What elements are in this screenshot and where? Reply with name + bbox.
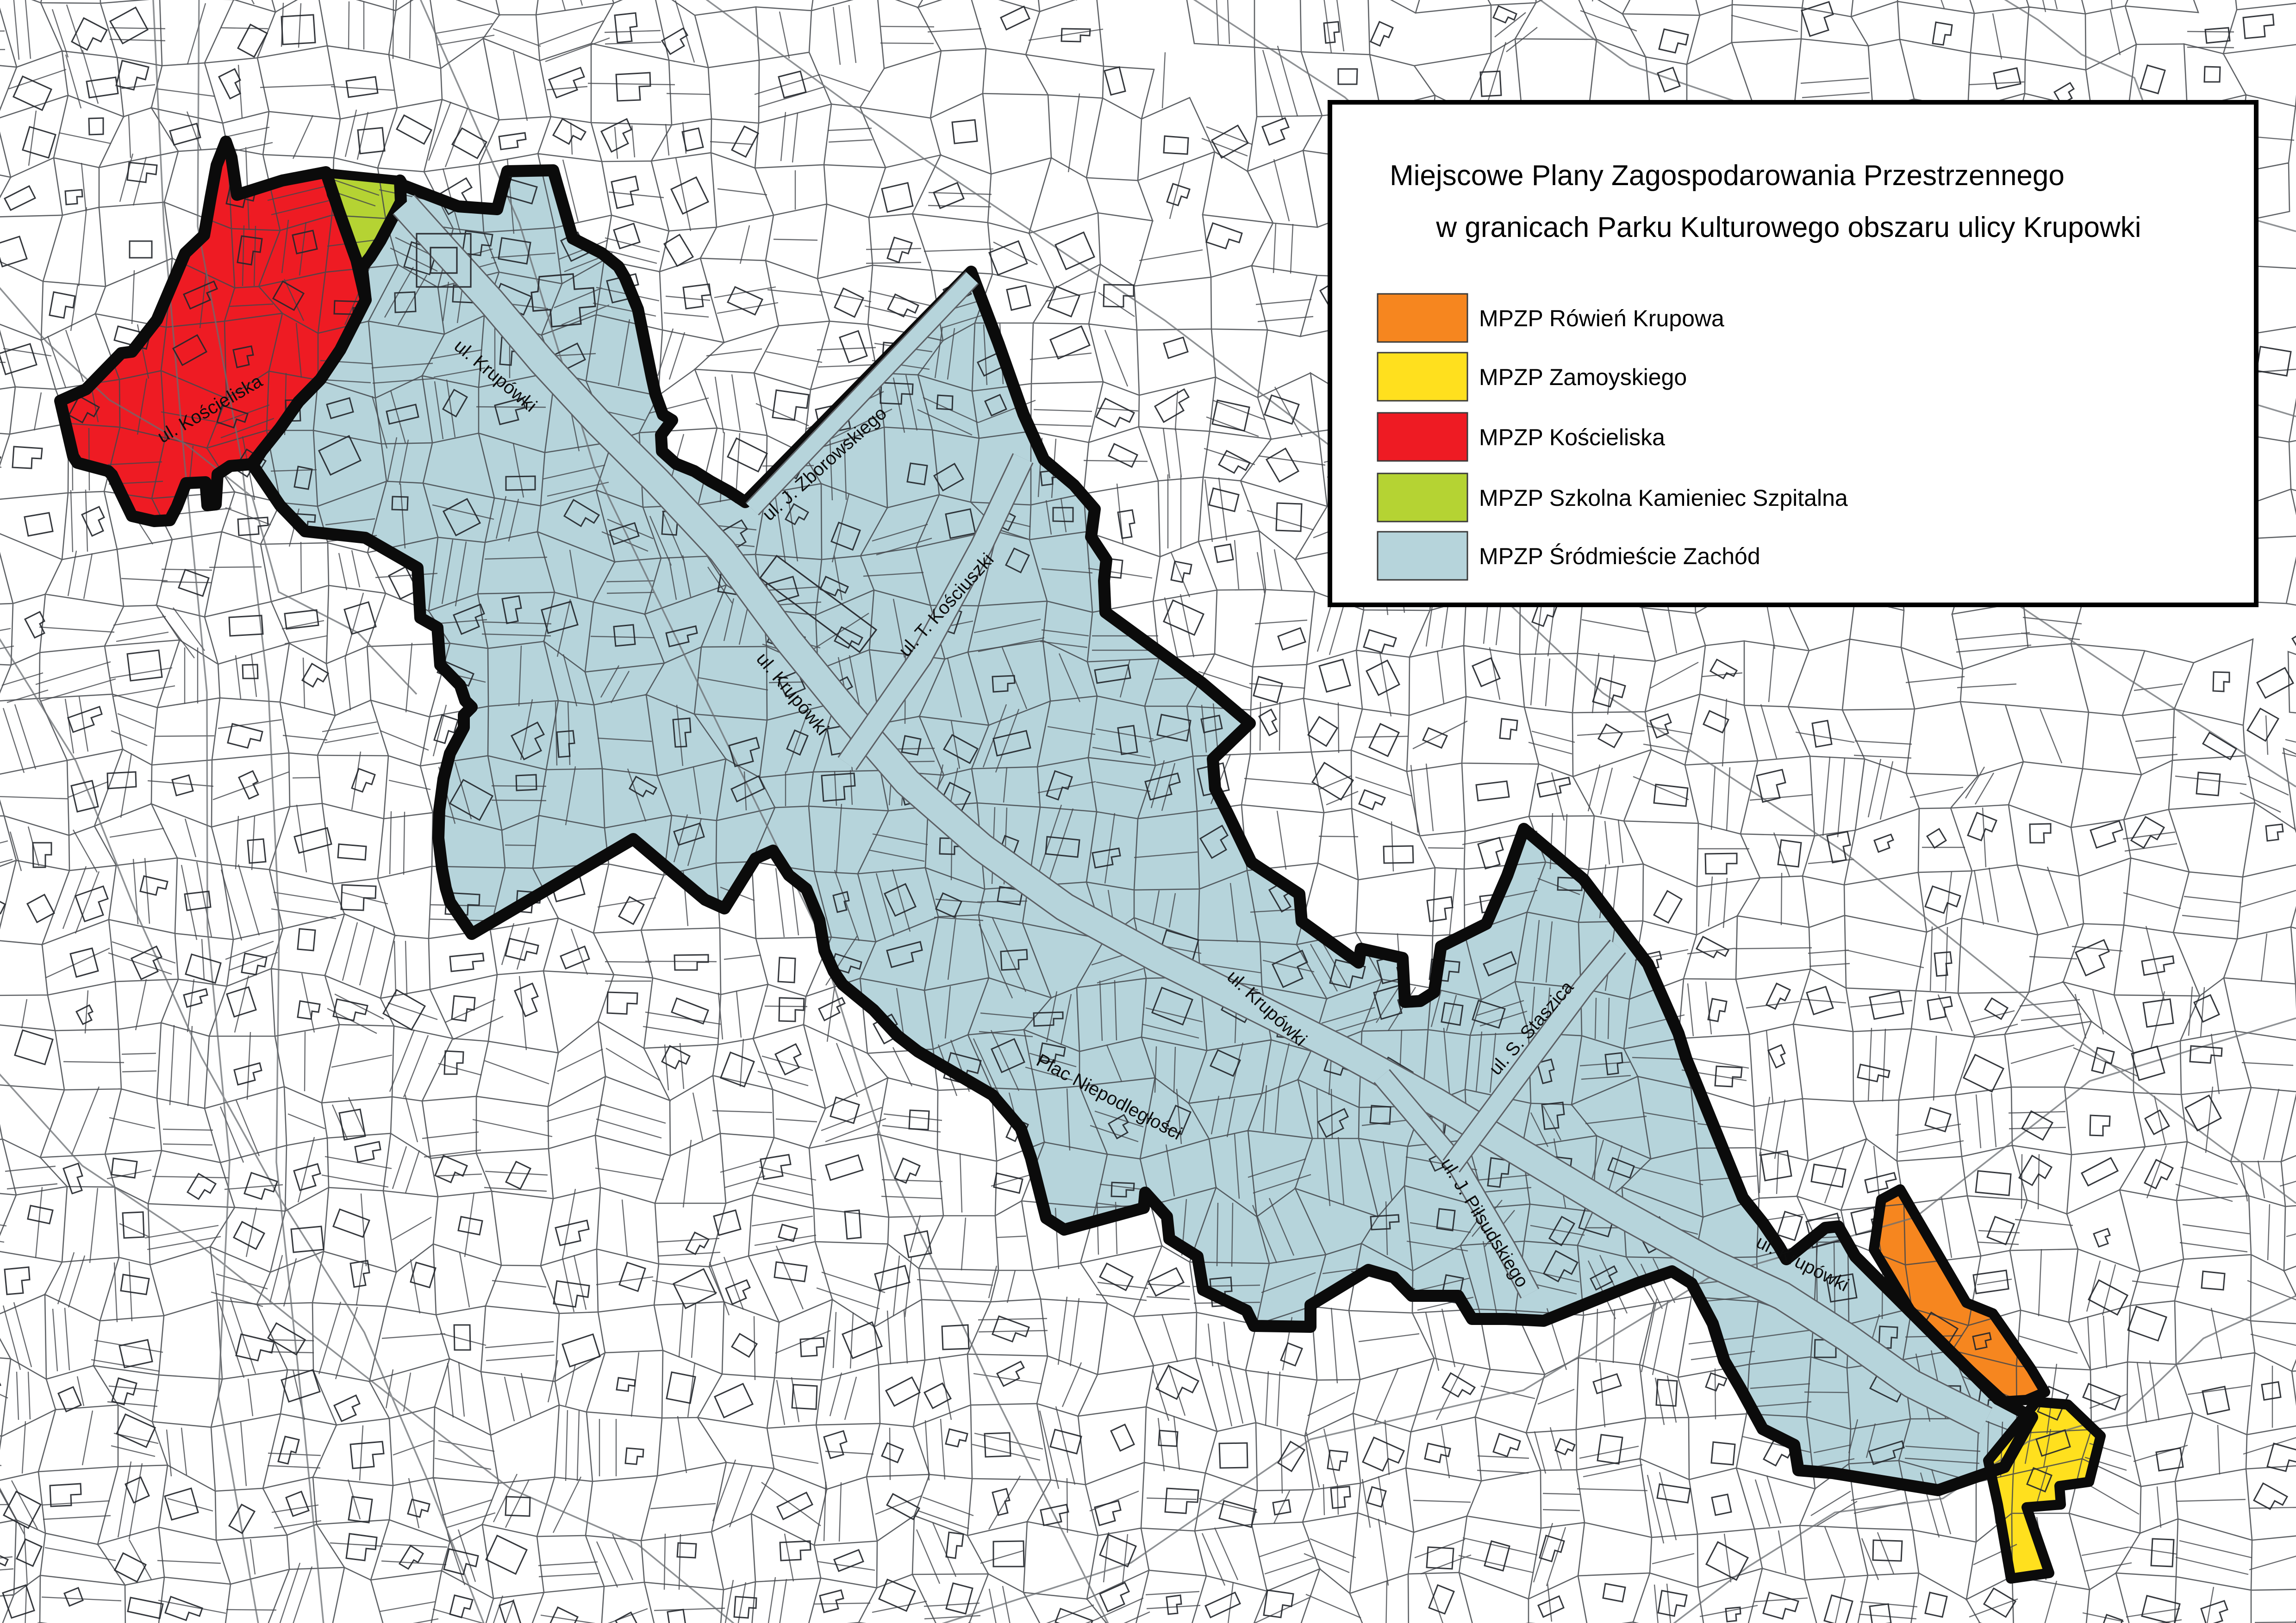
svg-text:MPZP Rówień Krupowa: MPZP Rówień Krupowa — [1479, 305, 1724, 331]
svg-text:MPZP Szkolna Kamieniec Szpital: MPZP Szkolna Kamieniec Szpitalna — [1479, 485, 1848, 511]
svg-text:w granicach Parku Kulturowego: w granicach Parku Kulturowego obszaru ul… — [1435, 211, 2141, 243]
svg-text:MPZP Zamoyskiego: MPZP Zamoyskiego — [1479, 364, 1687, 390]
svg-text:MPZP Śródmieście Zachód: MPZP Śródmieście Zachód — [1479, 543, 1760, 569]
svg-text:MPZP Kościeliska: MPZP Kościeliska — [1479, 424, 1665, 450]
svg-text:Miejscowe Plany Zagospodarowan: Miejscowe Plany Zagospodarowania Przestr… — [1390, 160, 2065, 192]
